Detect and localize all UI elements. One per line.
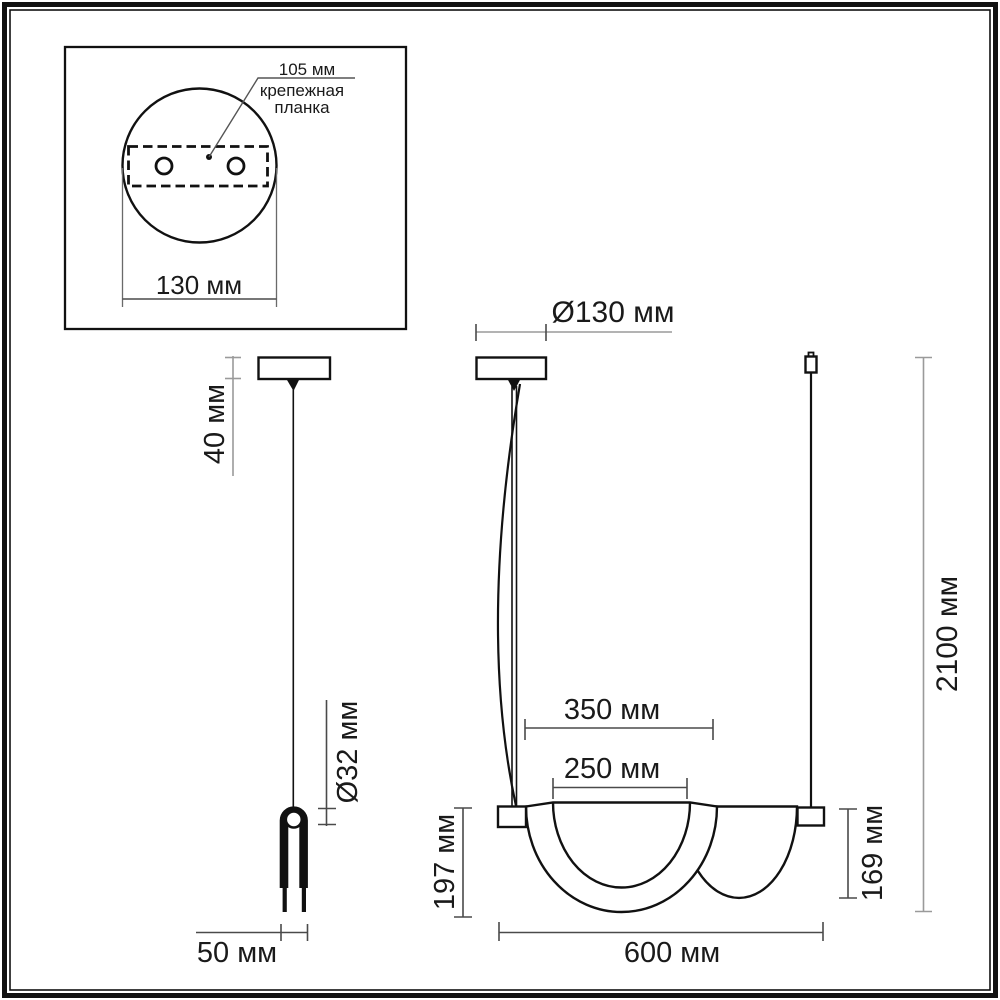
side-canopy xyxy=(259,358,331,380)
rear-shade-height-label: 169 мм xyxy=(857,805,889,901)
tube-cross-section xyxy=(286,812,302,828)
technical-drawing-page: 105 мм крепежная планка 130 мм 40 мм Ø32… xyxy=(0,0,1000,1000)
front-canopy xyxy=(477,358,547,380)
mounting-hole-left xyxy=(156,158,172,174)
fixture-width-label: 600 мм xyxy=(624,937,720,969)
tube-end-cap-right xyxy=(798,808,825,826)
canopy-height-label: 40 мм xyxy=(199,384,231,464)
drawing-canvas: 105 мм крепежная планка 130 мм 40 мм Ø32… xyxy=(0,0,1000,1000)
tube-end-cap-left xyxy=(498,807,526,828)
outer-border xyxy=(5,5,996,996)
outer-shade-width-label: 350 мм xyxy=(564,694,660,726)
inner-border xyxy=(10,10,990,990)
front-view: Ø130 мм 350 мм 250 мм 197 мм 169 мм 600 … xyxy=(429,296,964,969)
mounting-hole-right xyxy=(228,158,244,174)
canopy-width-label: 130 мм xyxy=(156,270,242,300)
canopy-diameter-label: Ø130 мм xyxy=(552,296,675,329)
fork-tip-left xyxy=(283,886,287,912)
ceiling-fixing-body xyxy=(806,357,817,373)
inset-panel: 105 мм крепежная планка 130 мм xyxy=(65,47,406,329)
fork-tip-right xyxy=(302,886,306,912)
tube-diameter-label: Ø32 мм xyxy=(332,701,364,804)
mounting-plate-label-line2: планка xyxy=(274,98,330,117)
page-border xyxy=(5,5,996,996)
fork-width-label: 50 мм xyxy=(197,937,277,969)
inner-shade-width-label: 250 мм xyxy=(564,753,660,785)
suspension-height-label: 2100 мм xyxy=(931,576,964,692)
hole-spacing-label: 105 мм xyxy=(279,60,335,79)
mounting-plate-outline xyxy=(129,147,268,187)
canopy-top-view xyxy=(123,89,277,243)
front-shade-height-label: 197 мм xyxy=(429,814,461,910)
side-view: 40 мм Ø32 мм 50 мм xyxy=(196,356,364,969)
